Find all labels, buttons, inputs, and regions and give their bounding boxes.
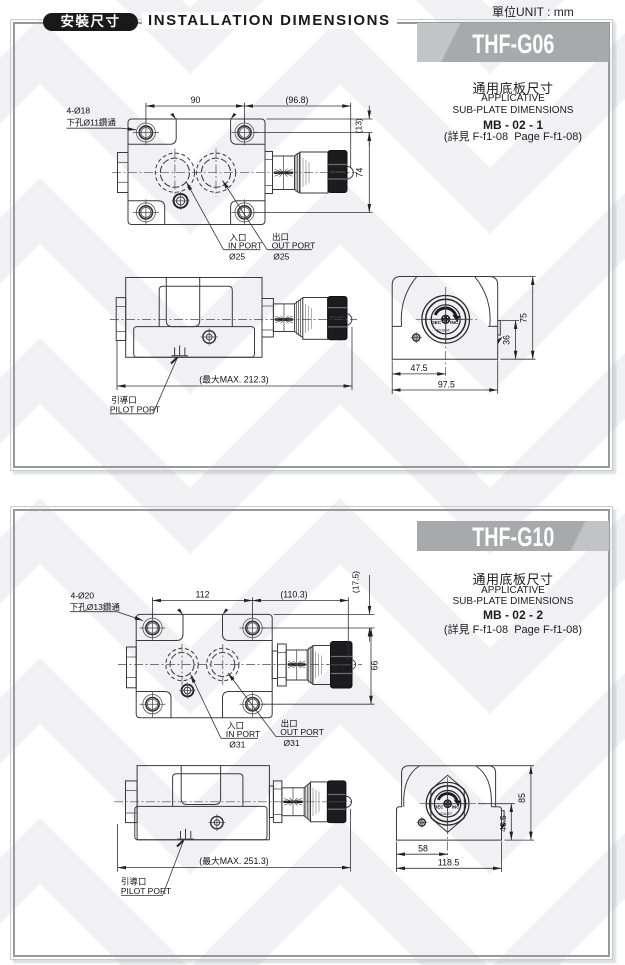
svg-text:85: 85 — [517, 793, 527, 803]
svg-text:INC: INC — [450, 320, 459, 326]
svg-text:36: 36 — [502, 335, 512, 345]
svg-text:(96.8): (96.8) — [286, 95, 309, 105]
svg-text:4-Ø18: 4-Ø18 — [67, 106, 91, 116]
svg-text:DEC: DEC — [434, 804, 444, 809]
svg-text:OUT PORT: OUT PORT — [272, 241, 316, 251]
svg-text:DEC: DEC — [431, 320, 442, 326]
svg-text:58: 58 — [418, 844, 428, 854]
svg-text:112: 112 — [195, 590, 209, 600]
svg-text:4-Ø20: 4-Ø20 — [71, 591, 95, 601]
svg-text:IN PORT: IN PORT — [226, 729, 260, 739]
svg-text:Ø25: Ø25 — [229, 252, 245, 262]
svg-text:74: 74 — [355, 168, 365, 178]
svg-text:(13): (13) — [354, 118, 364, 133]
svg-text:IN PORT: IN PORT — [228, 241, 262, 251]
svg-text:75: 75 — [518, 313, 528, 323]
svg-text:下孔Ø11鑽通: 下孔Ø11鑽通 — [67, 118, 117, 128]
svg-text:INC: INC — [452, 804, 460, 809]
svg-text:(110.3): (110.3) — [280, 590, 307, 600]
svg-text:40.5: 40.5 — [498, 815, 508, 832]
svg-text:(最大MAX. 251.3): (最大MAX. 251.3) — [199, 855, 268, 866]
svg-text:下孔Ø13鑽通: 下孔Ø13鑽通 — [70, 602, 121, 612]
svg-text:PILOT PORT: PILOT PORT — [121, 886, 171, 896]
svg-text:ADJUST: ADJUST — [439, 812, 452, 816]
svg-text:Ø31: Ø31 — [284, 738, 300, 748]
svg-text:OUT PORT: OUT PORT — [280, 727, 324, 737]
svg-text:66: 66 — [370, 661, 380, 671]
svg-text:PILOT PORT: PILOT PORT — [110, 404, 160, 414]
svg-text:90: 90 — [191, 95, 201, 105]
svg-text:118.5: 118.5 — [438, 858, 459, 868]
svg-text:(最大MAX. 212.3): (最大MAX. 212.3) — [199, 374, 268, 385]
svg-text:97.5: 97.5 — [438, 379, 455, 389]
svg-text:(17.5): (17.5) — [351, 571, 361, 593]
svg-text:Ø25: Ø25 — [273, 252, 289, 262]
svg-text:47.5: 47.5 — [410, 363, 427, 373]
svg-text:Ø31: Ø31 — [229, 739, 245, 749]
svg-text:ADJUST: ADJUST — [436, 329, 450, 333]
